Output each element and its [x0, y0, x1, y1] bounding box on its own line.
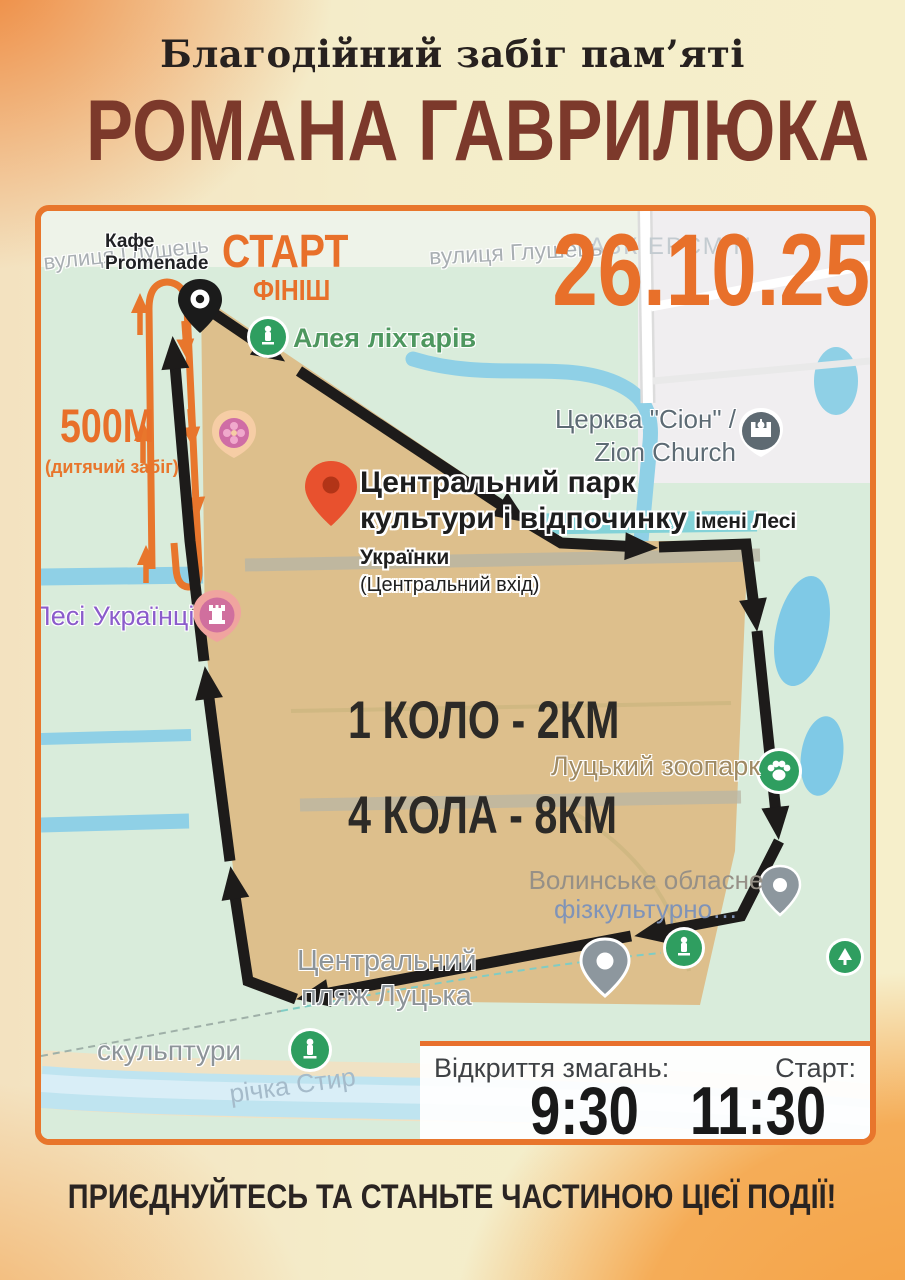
poster-subtitle: Благодійний забіг пам’яті — [0, 32, 905, 76]
tree-icon — [826, 938, 864, 976]
alley-label: Алея ліхтарів — [293, 323, 476, 354]
alley-icon — [247, 316, 289, 358]
cafe-label: Кафе Promenade — [105, 231, 208, 275]
start-time: 11:30 — [690, 1080, 860, 1143]
opening-time: 9:30 — [530, 1080, 666, 1143]
sport-complex-label: Волинське обласне фізкультурно… — [521, 866, 771, 924]
event-date: 26.10.25 — [473, 219, 870, 321]
cafe-label-line1: Кафе — [105, 231, 208, 253]
route-map: вулиця Глушець вулиця Глушець АЗК ЕРСМ Н… — [35, 205, 876, 1145]
kids-note-label: (дитячий забіг) — [45, 457, 179, 478]
beach-label-line1: Центральний — [297, 944, 477, 979]
park-label-line2: культури і відпочинку імені Лесі Українк… — [360, 501, 870, 573]
schedule-bar: Відкриття змагань: Старт: 9:30 11:30 — [420, 1041, 870, 1139]
church-label: Церква "Сіон" / Zion Church — [541, 403, 736, 468]
lap1-label: 1 КОЛО - 2КМ — [348, 691, 696, 752]
beach-label-line2: пляж Луцька — [301, 979, 477, 1014]
church-label-line1: Церква "Сіон" / — [541, 403, 736, 436]
church-label-line2: Zion Church — [541, 436, 736, 469]
park-label-line1: Центральний парк — [360, 465, 870, 501]
cafe-label-line2: Promenade — [105, 253, 208, 275]
start-label: СТАРТ — [222, 225, 371, 278]
beach-label: Центральний пляж Луцька — [297, 944, 477, 1014]
poster-slogan: ПРИЄДНУЙТЕСЬ ТА СТАНЬТЕ ЧАСТИНОЮ ЦІЄЇ ПО… — [0, 1178, 905, 1217]
zoo-icon — [756, 748, 802, 794]
sculptures-label: скульптури — [97, 1035, 241, 1067]
finish-label: ФІНІШ — [253, 275, 344, 308]
lap4-label: 4 КОЛА - 8КМ — [348, 786, 693, 847]
park-label: Центральний парк культури і відпочинку і… — [360, 465, 870, 597]
lesi-label: Лесі Українці — [35, 601, 194, 632]
park-label-line3: (Центральний вхід) — [360, 573, 870, 597]
beach-statue-icon — [663, 927, 705, 969]
sport-complex-line2: фізкультурно… — [521, 895, 771, 924]
kids-distance-label: 500М — [60, 399, 178, 453]
event-poster: Благодійний забіг пам’яті РОМАНА ГАВРИЛЮ… — [0, 0, 905, 1280]
sport-complex-line1: Волинське обласне — [521, 866, 771, 895]
zoo-label: Луцький зоопарк — [551, 751, 760, 782]
poster-title: РОМАНА ГАВРИЛЮКА — [0, 88, 905, 174]
poster-title-text: РОМАНА ГАВРИЛЮКА — [86, 88, 869, 174]
